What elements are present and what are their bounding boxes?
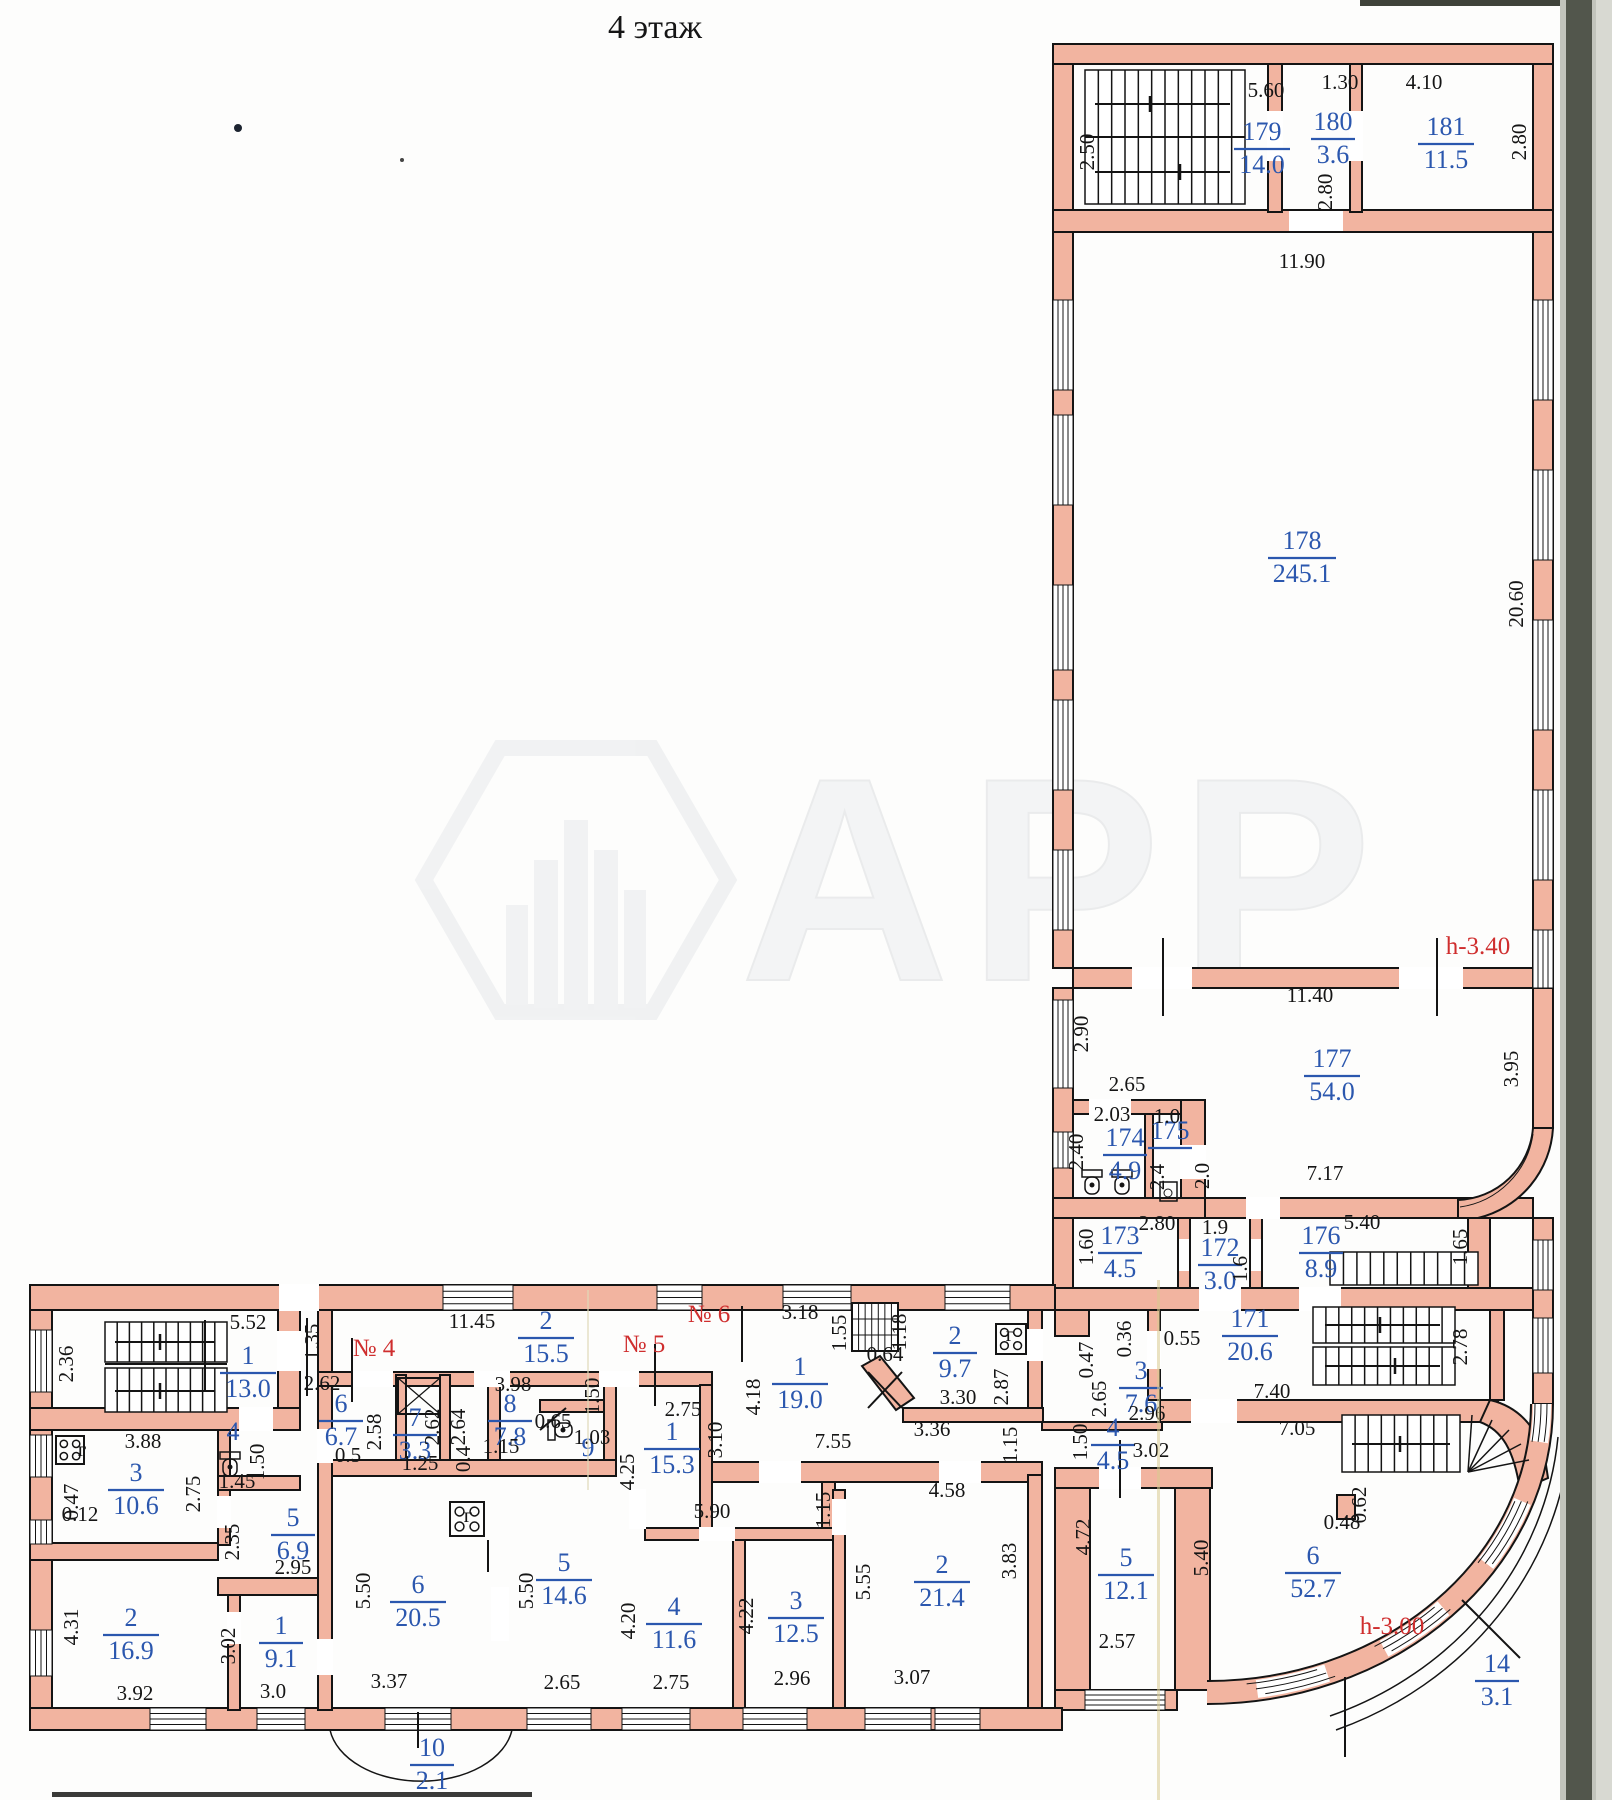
room-area: 9.7 (939, 1354, 972, 1383)
dimension-label: 2.80 (1313, 174, 1337, 211)
room-number: 173 (1101, 1221, 1140, 1250)
dimension-label: 4.25 (615, 1454, 639, 1491)
room-area: 52.7 (1290, 1574, 1336, 1603)
dimension-label: 3.36 (914, 1417, 951, 1441)
dimension-label: 1.6 (1228, 1256, 1252, 1282)
room-number: 4 (227, 1417, 240, 1446)
room-area: 12.5 (773, 1619, 819, 1648)
room-number: 176 (1302, 1221, 1341, 1250)
room-number: 1 (275, 1611, 288, 1640)
height-annotation: № 5 (623, 1331, 666, 1358)
dimension-label: 20.60 (1504, 580, 1528, 627)
room-number: 6 (412, 1570, 425, 1599)
dimension-label: 4.20 (616, 1603, 640, 1640)
dimension-label: 1.0 (1154, 1104, 1180, 1128)
dimension-label: 4.10 (1406, 70, 1443, 94)
dimension-label: 2.80 (1507, 124, 1531, 161)
room-area: 3.1 (1481, 1682, 1514, 1711)
room-area: 14.6 (541, 1581, 587, 1610)
dimension-label: 1.45 (219, 1469, 256, 1493)
door-opening (317, 1639, 333, 1675)
dimension-label: 7.55 (815, 1429, 852, 1453)
wall (1053, 64, 1073, 232)
room-area: 20.6 (1227, 1337, 1273, 1366)
room-number: 174 (1106, 1123, 1145, 1152)
dimension-label: 7.17 (1307, 1161, 1344, 1185)
dimension-label: 2.64 (446, 1408, 470, 1445)
dimension-label: 5.52 (230, 1310, 267, 1334)
room-number: 3 (1135, 1356, 1148, 1385)
door-opening (1251, 1239, 1261, 1271)
wall (1053, 1198, 1205, 1218)
dimension-label: 2.75 (181, 1476, 205, 1513)
dimension-label: 4.58 (929, 1478, 966, 1502)
dimension-label: 1.65 (1448, 1229, 1472, 1266)
dimension-label: 2.50 (1075, 134, 1099, 171)
dimension-label: 3.02 (1133, 1438, 1170, 1462)
dimension-label: 3.02 (216, 1628, 240, 1665)
dimension-label: 2.78 (1448, 1329, 1472, 1366)
room-area: 3.6 (1317, 140, 1350, 169)
room-area: 4.5 (1097, 1446, 1130, 1475)
room-number: 5 (287, 1503, 300, 1532)
dimension-label: г (78, 1437, 87, 1461)
height-annotation: h-3.40 (1446, 933, 1511, 960)
room-area: 13.0 (225, 1374, 271, 1403)
door-opening (1289, 211, 1343, 231)
scanned-floorplan-page: АРР 4 этаж 17914.01803.618111.5178245.11… (0, 0, 1612, 1800)
ink-speck (234, 124, 242, 132)
height-annotation: № 6 (688, 1301, 731, 1328)
dimension-label: 4.22 (734, 1598, 758, 1635)
paper-crease (587, 1290, 589, 1490)
dimension-label: 1.60 (1074, 1229, 1098, 1266)
wall (1053, 44, 1553, 64)
dimension-label: 2.65 (1087, 1381, 1111, 1418)
room-number: 10 (419, 1733, 445, 1762)
dimension-label: 2.75 (665, 1397, 702, 1421)
dimension-label: 1.15 (483, 1434, 520, 1458)
dimension-label: 2.65 (544, 1670, 581, 1694)
dimension-label: 2.90 (1069, 1016, 1093, 1053)
room-area: 12.1 (1103, 1576, 1149, 1605)
door-opening (351, 1371, 393, 1387)
dimension-label: 5.60 (1248, 78, 1285, 102)
room-number: 3 (790, 1586, 803, 1615)
door-opening (599, 1371, 639, 1387)
dimension-label: 1.9 (1202, 1215, 1228, 1239)
dimension-label: 2.4 (1145, 1163, 1169, 1190)
room-number: 2 (949, 1321, 962, 1350)
room-area: 4.5 (1104, 1254, 1137, 1283)
room-area: 54.0 (1309, 1077, 1355, 1106)
page-title: 4 этаж (608, 9, 702, 46)
dimension-label: 3.30 (940, 1385, 977, 1409)
dimension-label: 11.45 (449, 1309, 495, 1333)
dimension-label: 4.31 (59, 1609, 83, 1646)
dimension-label: 3.07 (894, 1665, 931, 1689)
door-opening (1179, 1239, 1189, 1271)
door-opening (699, 1527, 735, 1541)
dimension-label: 2.96 (774, 1666, 811, 1690)
dimension-label: 5.40 (1189, 1540, 1213, 1577)
wall (645, 1528, 833, 1540)
room-area: 21.4 (919, 1583, 965, 1612)
dimension-label: 1.15 (811, 1492, 835, 1529)
dimension-label: г (1006, 1322, 1015, 1346)
dimension-label: г (464, 1503, 473, 1527)
dimension-label: 0.65 (535, 1409, 572, 1433)
door-opening (629, 1489, 646, 1529)
dimension-label: 1.30 (1322, 70, 1359, 94)
room-number: 178 (1283, 526, 1322, 555)
dimension-label: 11.40 (1287, 983, 1333, 1007)
dimension-label: 3.10 (703, 1422, 727, 1459)
dimension-label: 2.95 (275, 1555, 312, 1579)
room-area: 2.1 (416, 1766, 449, 1795)
dimension-label: 2.80 (1139, 1211, 1176, 1235)
room-area: 9.1 (265, 1644, 298, 1673)
dimension-label: 5.50 (351, 1573, 375, 1610)
dimension-label: 0.36 (1112, 1321, 1136, 1358)
door-opening (1399, 967, 1463, 989)
dimension-label: 5.50 (514, 1573, 538, 1610)
scanner-edge-light (1596, 0, 1612, 1800)
ink-speck (400, 158, 404, 162)
scanner-bottom-edge (52, 1792, 532, 1797)
room-number: 1 (666, 1417, 679, 1446)
dimension-label: 5.90 (694, 1499, 731, 1523)
room-number: 2 (540, 1306, 553, 1335)
dimension-label: 0.62 (1347, 1487, 1371, 1524)
wall (1490, 1310, 1504, 1400)
dimension-label: 2.87 (989, 1369, 1013, 1406)
dimension-label: 3.98 (495, 1372, 532, 1396)
dimension-label: 0.64 (867, 1342, 904, 1366)
dimension-label: 3.18 (782, 1300, 819, 1324)
wall (1055, 1310, 1089, 1336)
height-annotation: № 4 (353, 1335, 396, 1362)
wall (1533, 988, 1553, 1128)
room-area: 245.1 (1273, 559, 1332, 588)
height-annotation: h-3.00 (1360, 1613, 1425, 1640)
dimension-label: 0.12 (62, 1502, 99, 1526)
toilet-drain (1090, 1183, 1095, 1188)
dimension-label: 3.95 (1499, 1051, 1523, 1088)
room-label: 1744.9 (1103, 1123, 1147, 1185)
dimension-label: 0.55 (1164, 1326, 1201, 1350)
room-number: 6 (1307, 1541, 1320, 1570)
dimension-label: 3.88 (125, 1429, 162, 1453)
dimension-label: 5.40 (1344, 1210, 1381, 1234)
room-area: 15.3 (649, 1450, 695, 1479)
door-opening (1246, 1197, 1280, 1219)
room-number: 2 (125, 1603, 138, 1632)
dimension-label: 3.83 (997, 1543, 1021, 1580)
dimension-label: 2.57 (1099, 1629, 1136, 1653)
room-label: 1803.6 (1311, 107, 1355, 169)
room-number: 179 (1243, 117, 1282, 146)
room-area: 4.9 (1109, 1156, 1142, 1185)
dimension-label: 1.50 (580, 1378, 604, 1415)
room-area: 8.9 (1305, 1254, 1338, 1283)
room-number: 3 (130, 1458, 143, 1487)
room-area: 20.5 (395, 1603, 441, 1632)
room-area: 19.0 (777, 1385, 823, 1414)
room-number: 2 (936, 1550, 949, 1579)
room-label: 1768.9 (1299, 1221, 1343, 1283)
door-opening (239, 1407, 273, 1431)
room-number: 177 (1313, 1044, 1352, 1073)
scanner-top-edge (1360, 0, 1560, 6)
room-number: 1 (242, 1341, 255, 1370)
floorplan-svg: АРР 4 этаж 17914.01803.618111.5178245.11… (0, 0, 1612, 1800)
door-opening (759, 1461, 801, 1483)
wall (1028, 1310, 1042, 1422)
dimension-label: 2.35 (220, 1524, 244, 1561)
dimension-label: 1.35 (300, 1324, 324, 1361)
room-area: 16.9 (108, 1636, 154, 1665)
dimension-label: 2.75 (653, 1670, 690, 1694)
room-number: 180 (1314, 107, 1353, 136)
room-area: 15.5 (523, 1339, 569, 1368)
dimension-label: 5.55 (851, 1564, 875, 1601)
dimension-label: 4.72 (1071, 1519, 1095, 1556)
paper-crease (1157, 1280, 1160, 1800)
door-opening (277, 1331, 301, 1371)
room-label: 4 (227, 1417, 240, 1446)
dimension-label: 1.25 (402, 1451, 439, 1475)
room-number: 5 (558, 1548, 571, 1577)
room-number: 171 (1231, 1304, 1270, 1333)
dimension-label: 0.47 (1074, 1342, 1098, 1379)
room-label: 1734.5 (1098, 1221, 1142, 1283)
scanner-edge-dark (1566, 0, 1592, 1800)
door-opening (1191, 1399, 1237, 1423)
room-area: 11.5 (1424, 145, 1469, 174)
dimension-label: 1.15 (998, 1427, 1022, 1464)
dimension-label: 4.18 (741, 1379, 765, 1416)
dimension-label: 11.90 (1279, 249, 1325, 273)
dimension-label: 7.05 (1279, 1416, 1316, 1440)
dimension-label: 1.55 (827, 1315, 851, 1352)
room-number: 5 (1120, 1543, 1133, 1572)
wall (30, 1543, 218, 1560)
dimension-label: 3.0 (260, 1679, 286, 1703)
room-area: 10.6 (113, 1491, 159, 1520)
room-number: 1 (794, 1352, 807, 1381)
dimension-label: 1.50 (1068, 1424, 1092, 1461)
dimension-label: 3.92 (117, 1681, 154, 1705)
door-opening (1027, 1329, 1043, 1361)
dimension-label: 2.03 (1094, 1102, 1131, 1126)
dimension-label: 2.36 (54, 1346, 78, 1383)
wall (218, 1578, 330, 1595)
dimension-label: 3.37 (371, 1669, 408, 1693)
dimension-label: 0.5 (335, 1443, 361, 1467)
dimension-label: 2.62 (420, 1409, 444, 1446)
room-number: 14 (1484, 1649, 1510, 1678)
dimension-label: 7.40 (1254, 1379, 1291, 1403)
wall (1175, 1488, 1210, 1690)
door-opening (217, 1496, 231, 1528)
door-opening (491, 1587, 509, 1641)
room-area: 11.6 (652, 1625, 697, 1654)
dimension-label: 1.03 (574, 1425, 611, 1449)
dimension-label: 2.65 (1109, 1072, 1146, 1096)
wall (1028, 1475, 1042, 1708)
door-opening (279, 1284, 319, 1311)
dimension-label: 2.58 (362, 1414, 386, 1451)
wall (1533, 64, 1553, 232)
room-number: 181 (1427, 112, 1466, 141)
room-area: 14.0 (1239, 150, 1285, 179)
dimension-label: 2.62 (304, 1371, 341, 1395)
dimension-label: 0.4 (451, 1445, 475, 1472)
room-number: 4 (668, 1592, 681, 1621)
dimension-label: 2.0 (1190, 1163, 1214, 1189)
dimension-label: 2.40 (1064, 1134, 1088, 1171)
